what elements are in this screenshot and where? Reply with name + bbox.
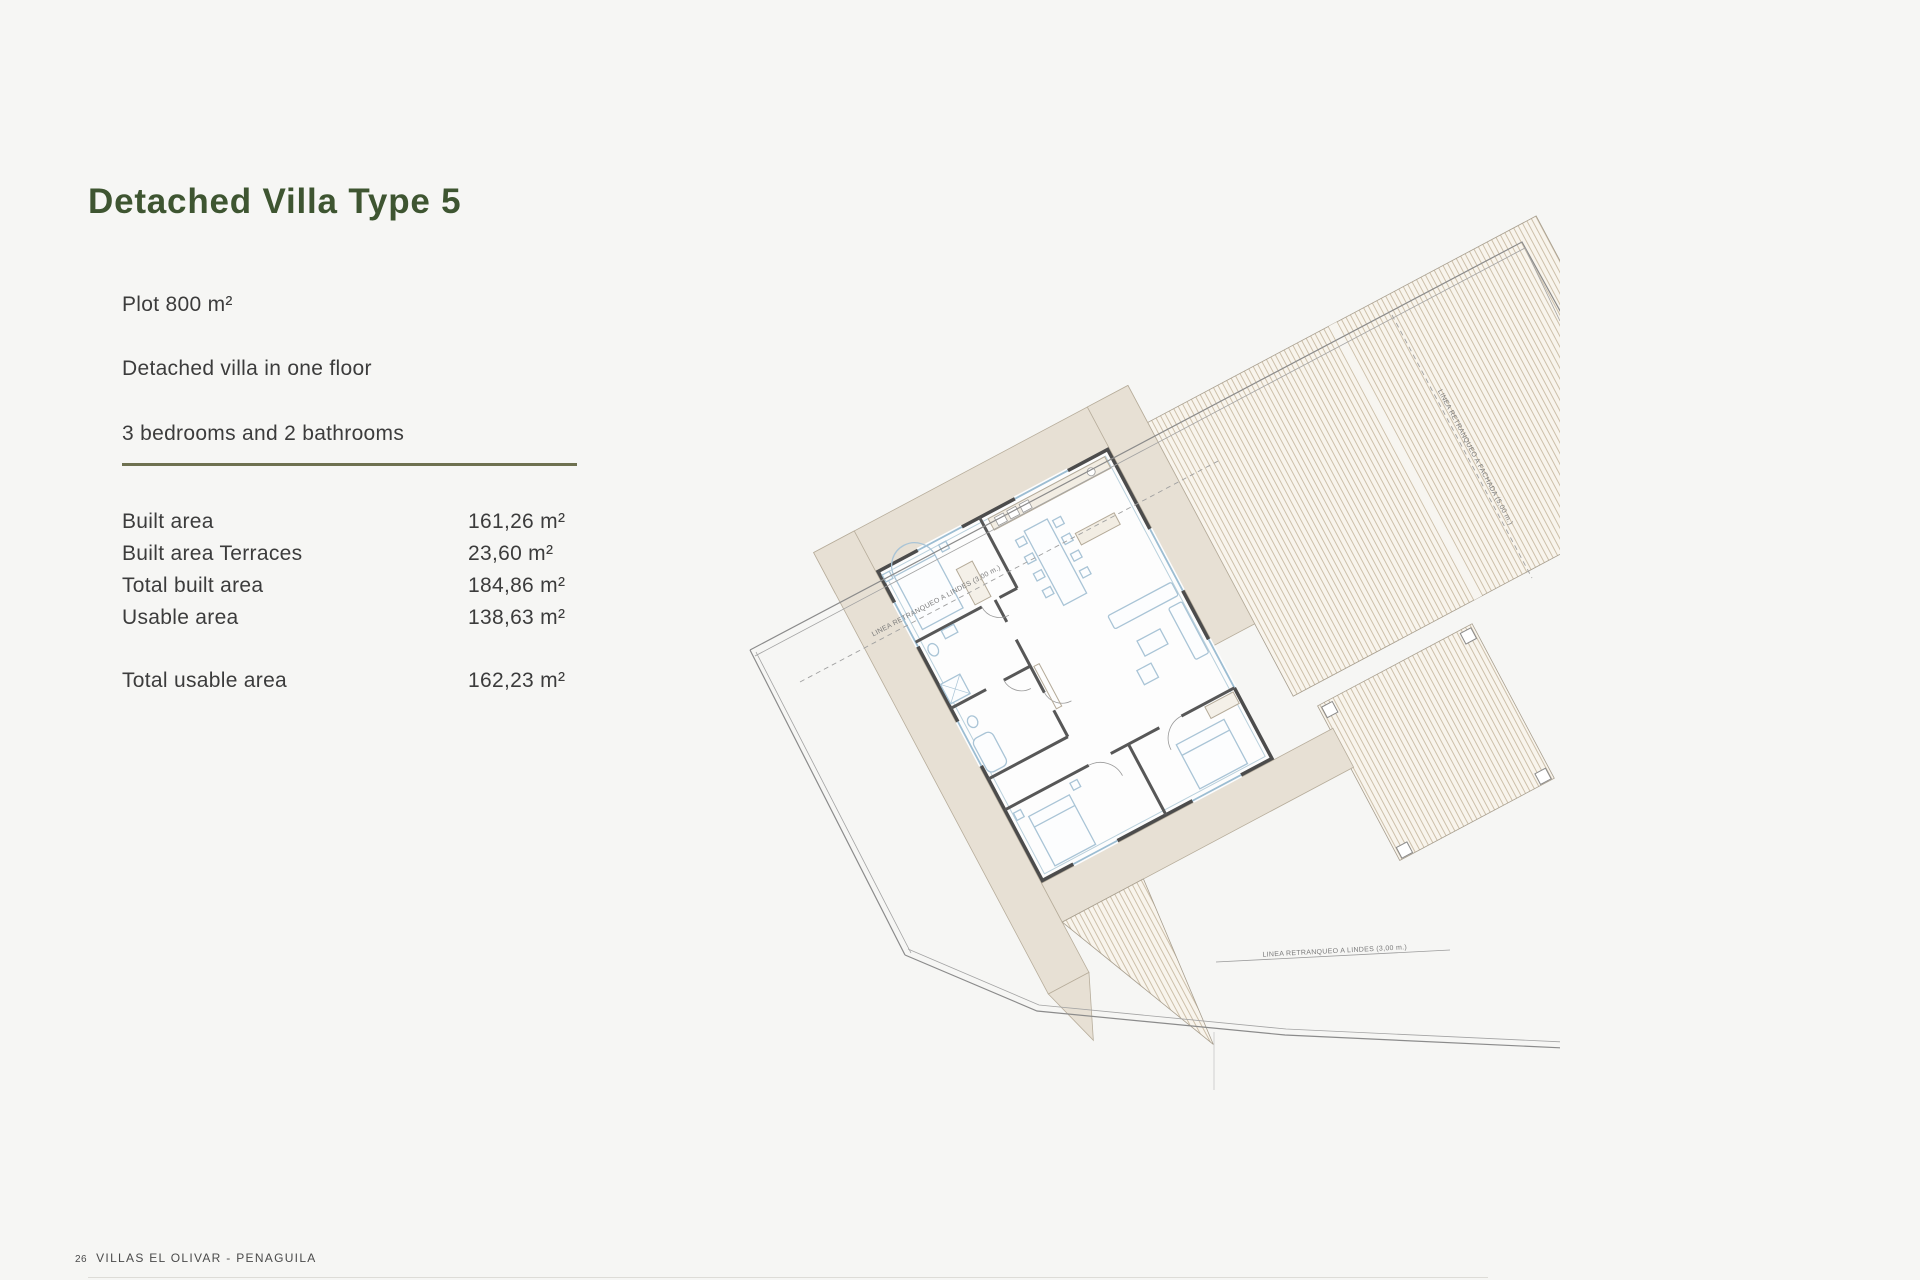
spec-row-built-area-terraces: Built area Terraces 23,60 m² xyxy=(122,538,602,570)
spec-label: Built area Terraces xyxy=(122,542,468,566)
spec-row-total-usable-area: Total usable area 162,23 m² xyxy=(122,665,602,697)
villa-building-group xyxy=(814,190,1560,1090)
spec-value: 162,23 m² xyxy=(468,669,602,693)
brochure-page: Detached Villa Type 5 Plot 800 m² Detach… xyxy=(0,0,1920,1280)
spec-row-built-area: Built area 161,26 m² xyxy=(122,506,602,538)
site-plan-drawing: LINEA RETRANQUEO A LINDES (3,00 m.) LINE… xyxy=(620,190,1560,1090)
floors-text: Detached villa in one floor xyxy=(122,357,372,381)
divider-line xyxy=(122,463,577,466)
spec-row-usable-area: Usable area 138,63 m² xyxy=(122,602,602,634)
setback-bottom-label: LINEA RETRANQUEO A LINDES (3,00 m.) xyxy=(1262,944,1407,959)
footer: 26 VILLAS EL OLIVAR - PENAGUILA xyxy=(75,1251,317,1265)
spec-label: Total built area xyxy=(122,574,468,598)
spec-value: 161,26 m² xyxy=(468,510,602,534)
spec-label: Total usable area xyxy=(122,669,468,693)
page-title: Detached Villa Type 5 xyxy=(88,182,461,222)
spec-value: 138,63 m² xyxy=(468,606,602,630)
page-number: 26 xyxy=(75,1254,87,1265)
area-spec-table: Built area 161,26 m² Built area Terraces… xyxy=(122,506,602,697)
spec-value: 184,86 m² xyxy=(468,574,602,598)
spec-label: Usable area xyxy=(122,606,468,630)
rooms-text: 3 bedrooms and 2 bathrooms xyxy=(122,422,404,446)
footer-rule xyxy=(88,1277,1488,1278)
spec-value: 23,60 m² xyxy=(468,542,602,566)
spec-label: Built area xyxy=(122,510,468,534)
project-name: VILLAS EL OLIVAR - PENAGUILA xyxy=(96,1251,316,1265)
plot-size-text: Plot 800 m² xyxy=(122,293,233,317)
spec-row-total-built-area: Total built area 184,86 m² xyxy=(122,570,602,602)
